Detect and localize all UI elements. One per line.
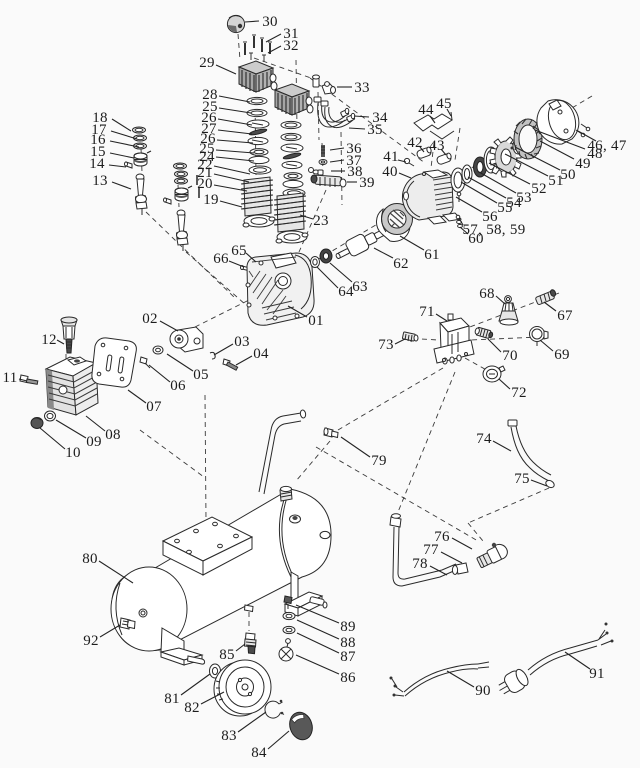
svg-text:55: 55	[497, 200, 513, 216]
svg-text:42: 42	[407, 135, 423, 151]
svg-text:70: 70	[502, 348, 518, 364]
svg-text:65: 65	[231, 243, 247, 259]
svg-text:33: 33	[354, 80, 370, 96]
svg-text:79: 79	[371, 453, 387, 469]
svg-text:35: 35	[367, 122, 383, 138]
svg-text:14: 14	[89, 156, 105, 172]
svg-text:71: 71	[419, 304, 435, 320]
svg-text:72: 72	[511, 385, 527, 401]
svg-text:10: 10	[65, 445, 81, 461]
svg-text:62: 62	[393, 256, 409, 272]
svg-text:85: 85	[219, 647, 235, 663]
svg-text:81: 81	[164, 691, 180, 707]
svg-text:68: 68	[479, 286, 495, 302]
svg-text:03: 03	[234, 334, 250, 350]
svg-text:05: 05	[193, 367, 209, 383]
svg-text:91: 91	[589, 666, 605, 682]
svg-text:20: 20	[197, 176, 213, 192]
svg-text:43: 43	[429, 138, 445, 154]
svg-text:32: 32	[283, 38, 299, 54]
svg-text:92: 92	[83, 633, 99, 649]
svg-text:09: 09	[86, 434, 102, 450]
svg-text:45: 45	[436, 96, 452, 112]
svg-text:75: 75	[514, 471, 530, 487]
svg-text:08: 08	[105, 427, 121, 443]
svg-text:89: 89	[340, 619, 356, 635]
svg-text:86: 86	[340, 670, 356, 686]
svg-text:44: 44	[418, 102, 434, 118]
svg-text:90: 90	[475, 683, 491, 699]
svg-text:52: 52	[531, 181, 547, 197]
svg-text:63: 63	[352, 279, 368, 295]
svg-text:04: 04	[253, 346, 269, 362]
svg-text:01: 01	[308, 313, 324, 329]
svg-text:12: 12	[41, 332, 57, 348]
svg-text:69: 69	[554, 347, 570, 363]
svg-text:41: 41	[383, 149, 399, 165]
svg-text:82: 82	[184, 700, 200, 716]
svg-text:19: 19	[203, 192, 219, 208]
svg-text:30: 30	[262, 14, 278, 30]
svg-text:11: 11	[2, 370, 17, 386]
svg-text:61: 61	[424, 247, 440, 263]
svg-text:67: 67	[557, 308, 573, 324]
svg-text:13: 13	[92, 173, 108, 189]
svg-text:60: 60	[468, 231, 484, 247]
svg-text:66: 66	[213, 251, 229, 267]
svg-text:39: 39	[359, 175, 375, 191]
svg-text:07: 07	[146, 399, 162, 415]
svg-text:73: 73	[378, 337, 394, 353]
svg-text:74: 74	[476, 431, 492, 447]
svg-text:02: 02	[142, 311, 158, 327]
svg-text:29: 29	[199, 55, 215, 71]
svg-text:06: 06	[170, 378, 186, 394]
svg-text:87: 87	[340, 649, 356, 665]
svg-text:83: 83	[221, 728, 237, 744]
svg-text:80: 80	[82, 551, 98, 567]
svg-text:78: 78	[412, 556, 428, 572]
svg-text:40: 40	[382, 164, 398, 180]
svg-text:49: 49	[575, 156, 591, 172]
svg-text:84: 84	[251, 745, 267, 761]
svg-text:64: 64	[338, 284, 354, 300]
svg-text:23: 23	[313, 213, 329, 229]
svg-text:51: 51	[548, 173, 564, 189]
